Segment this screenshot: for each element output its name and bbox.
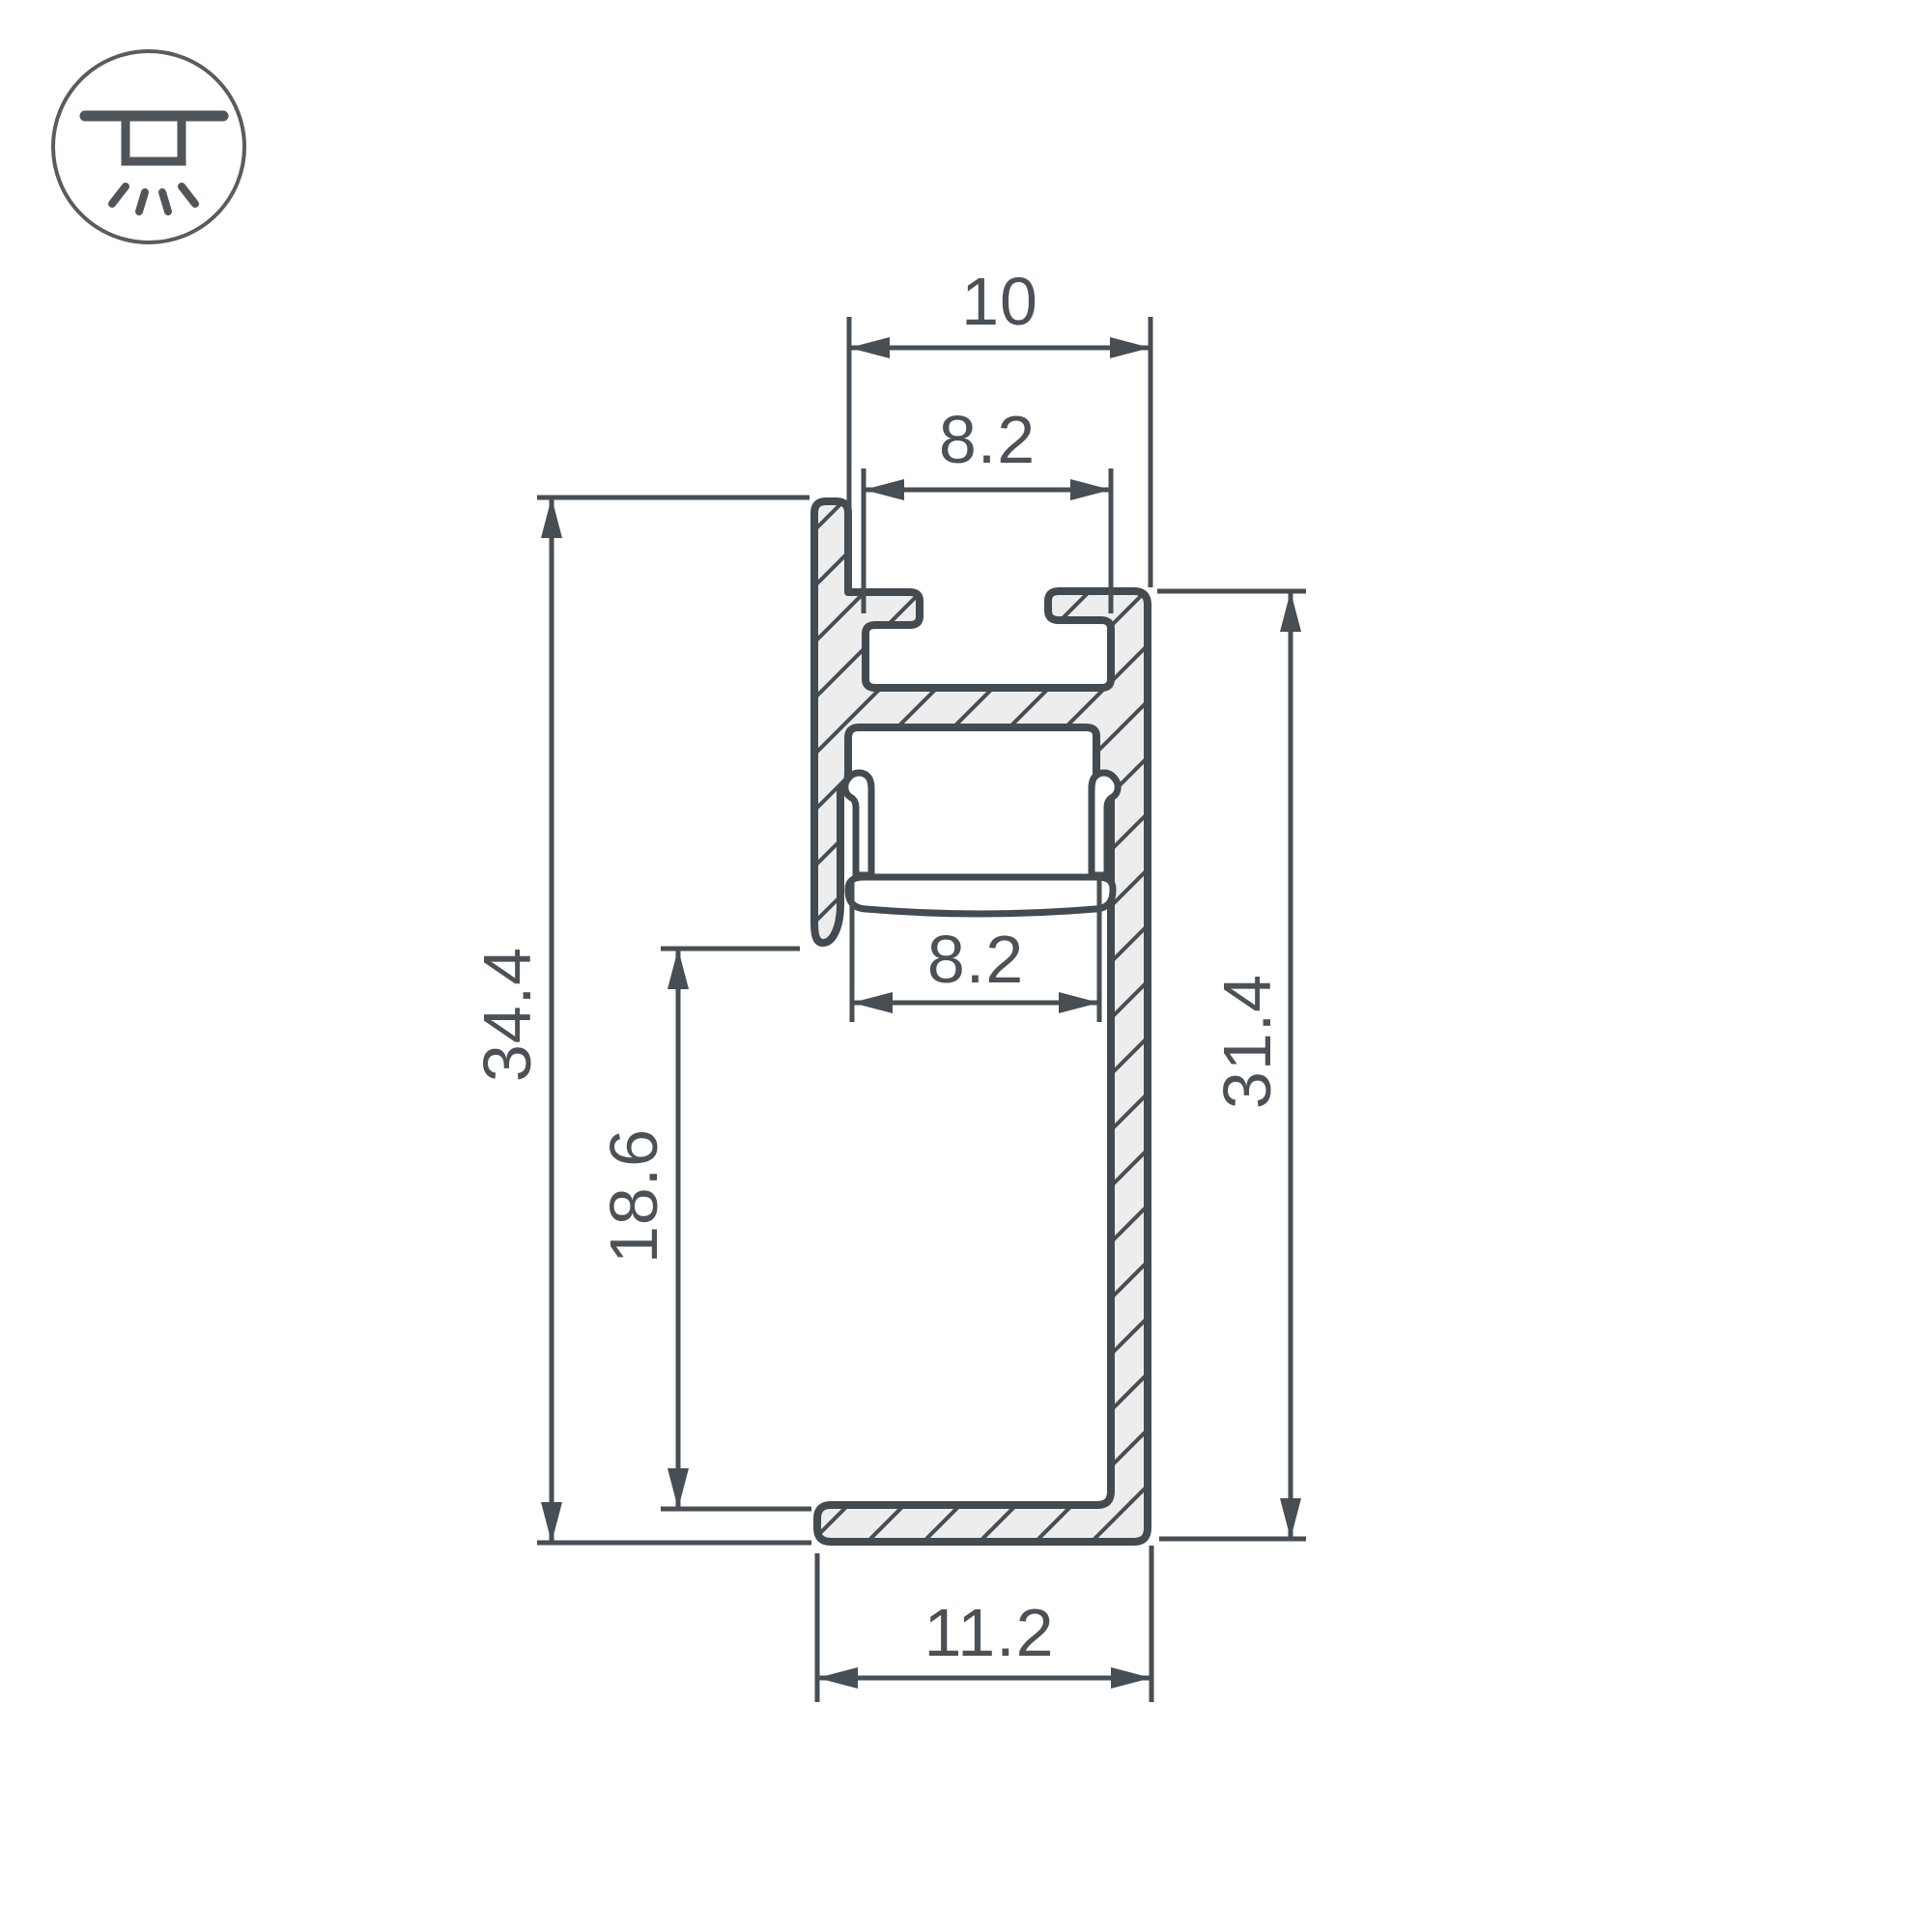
arrowhead-left-icon: [852, 992, 893, 1013]
arrowhead-left-icon: [849, 337, 890, 358]
dimension-annotations: 10 8.2 8.2: [469, 264, 1306, 1702]
icon-circle: [53, 51, 244, 242]
diffuser-plate: [848, 877, 1113, 914]
arrowhead-down-icon: [668, 1468, 689, 1509]
dimension-label: 34.4: [469, 947, 545, 1082]
dimension-label: 8.2: [939, 402, 1036, 477]
dimension-label: 31.4: [1209, 974, 1285, 1109]
dimension-label: 10: [961, 264, 1038, 339]
dimension-top-slot-inner-width: 8.2: [864, 402, 1111, 613]
arrowhead-left-icon: [864, 479, 904, 500]
arrowhead-down-icon: [541, 1502, 562, 1543]
dimension-label: 11.2: [923, 1595, 1054, 1670]
arrowhead-up-icon: [1280, 591, 1301, 632]
dimension-wall-height: 31.4: [1157, 591, 1306, 1539]
arrowhead-up-icon: [541, 497, 562, 538]
arrowhead-up-icon: [668, 949, 689, 989]
dimension-label: 8.2: [927, 922, 1024, 997]
icon-light-rays: [112, 186, 195, 212]
icon-fixture-box: [126, 121, 182, 161]
arrowhead-down-icon: [1280, 1498, 1301, 1539]
dimension-base-width: 11.2: [817, 1546, 1151, 1702]
arrowhead-right-icon: [1070, 479, 1111, 500]
dimension-flange-to-base-height: 18.6: [596, 949, 811, 1509]
drawing-canvas: 10 8.2 8.2: [0, 0, 1932, 1932]
recessed-light-icon: [53, 51, 244, 242]
arrowhead-right-icon: [1059, 992, 1099, 1013]
dimension-overall-height: 34.4: [469, 497, 811, 1543]
diffuser-lens: [845, 773, 1118, 914]
diffuser-left-hook: [845, 773, 871, 875]
arrowhead-right-icon: [1110, 337, 1151, 358]
dimension-label: 18.6: [596, 1128, 671, 1264]
arrowhead-left-icon: [817, 1667, 858, 1689]
arrowhead-right-icon: [1111, 1667, 1151, 1689]
profile-dimension-drawing: 10 8.2 8.2: [0, 0, 1932, 1932]
